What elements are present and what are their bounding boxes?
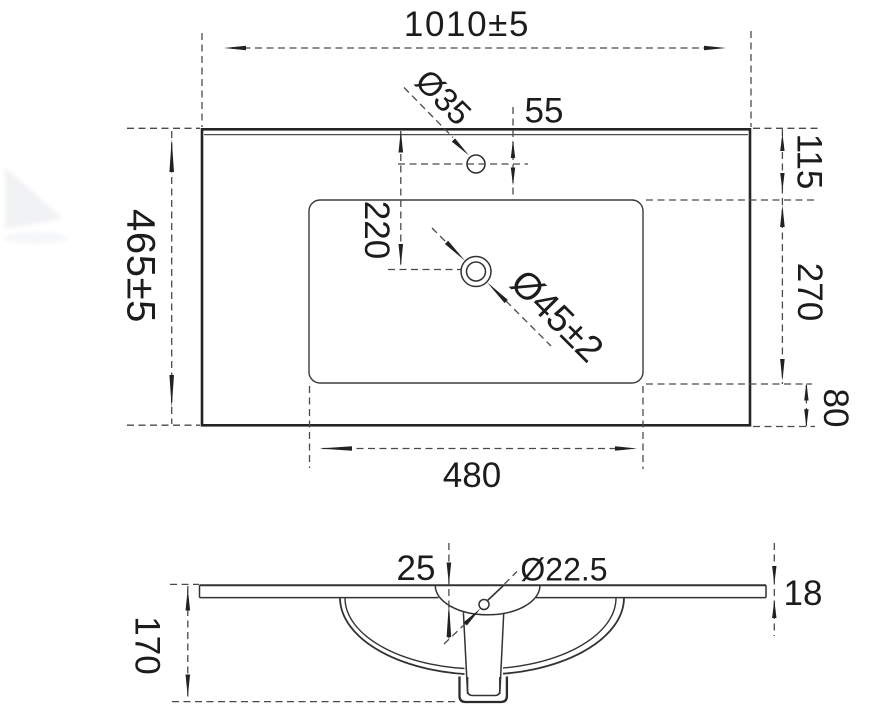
svg-text:55: 55 bbox=[525, 92, 564, 131]
svg-text:465±5: 465±5 bbox=[119, 209, 163, 323]
svg-text:170: 170 bbox=[128, 616, 167, 674]
svg-text:115: 115 bbox=[790, 134, 829, 190]
svg-text:480: 480 bbox=[443, 456, 501, 495]
svg-text:220: 220 bbox=[357, 201, 396, 259]
svg-text:18: 18 bbox=[784, 574, 823, 613]
svg-text:270: 270 bbox=[790, 263, 829, 321]
svg-text:80: 80 bbox=[816, 389, 855, 428]
svg-text:Ø22.5: Ø22.5 bbox=[520, 552, 607, 588]
svg-text:25: 25 bbox=[397, 549, 436, 588]
svg-text:1010±5: 1010±5 bbox=[404, 5, 530, 44]
